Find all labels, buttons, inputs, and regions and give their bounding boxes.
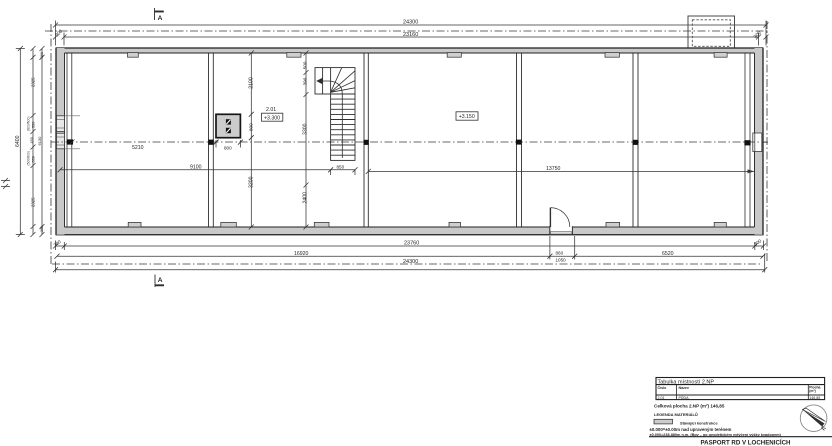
- svg-text:450: 450: [30, 137, 34, 143]
- svg-text:LEGENDA MATERIÁLŮ: LEGENDA MATERIÁLŮ: [654, 412, 698, 417]
- svg-text:A: A: [158, 15, 163, 22]
- svg-text:(600/600): (600/600): [26, 116, 30, 131]
- svg-text:24300: 24300: [403, 259, 418, 265]
- svg-text:550: 550: [32, 122, 36, 128]
- svg-text:5210: 5210: [132, 145, 144, 151]
- svg-text:23760: 23760: [404, 241, 419, 247]
- svg-text:1050: 1050: [556, 258, 567, 263]
- svg-text:2400: 2400: [303, 192, 309, 204]
- svg-text:3200: 3200: [248, 176, 254, 188]
- svg-text:13750: 13750: [546, 166, 561, 172]
- svg-text:2.01: 2.01: [658, 396, 665, 400]
- svg-text:800: 800: [224, 145, 232, 150]
- svg-text:+3.300: +3.300: [264, 115, 280, 121]
- svg-text:860: 860: [556, 251, 564, 256]
- svg-text:390: 390: [303, 77, 308, 85]
- svg-text:Název: Název: [679, 386, 689, 390]
- svg-text:3300: 3300: [303, 123, 309, 135]
- svg-text:2325: 2325: [31, 77, 36, 87]
- svg-text:PŮDA: PŮDA: [679, 395, 690, 400]
- svg-text:PASPORT RD V LOCHENICÍCH: PASPORT RD V LOCHENICÍCH: [701, 438, 792, 446]
- svg-text:(500/600): (500/600): [26, 151, 30, 166]
- svg-text:±0.000=±0.00m nad upraveným te: ±0.000=±0.00m nad upraveným terénem: [650, 427, 732, 432]
- svg-text:Tabulka místností 2.NP: Tabulka místností 2.NP: [658, 380, 715, 386]
- svg-text:(m²): (m²): [809, 389, 815, 393]
- svg-text:550: 550: [32, 156, 36, 162]
- svg-text:24300: 24300: [403, 19, 418, 25]
- svg-text:6130: 6130: [37, 136, 42, 146]
- svg-text:Stávající konstrukce: Stávající konstrukce: [680, 420, 718, 425]
- svg-text:23160: 23160: [403, 32, 418, 38]
- svg-text:A: A: [158, 277, 163, 284]
- svg-text:850: 850: [337, 164, 345, 169]
- svg-text:146,85: 146,85: [809, 396, 820, 400]
- svg-text:Celková plocha 2.NP (m²) 146,: Celková plocha 2.NP (m²) 146,85: [654, 403, 725, 408]
- svg-text:16920: 16920: [294, 251, 309, 257]
- svg-text:300: 300: [40, 52, 44, 58]
- svg-text:6520: 6520: [662, 251, 674, 257]
- svg-text:500: 500: [303, 61, 308, 69]
- svg-text:9100: 9100: [190, 164, 202, 170]
- svg-text:6400: 6400: [15, 135, 21, 147]
- svg-text:800: 800: [248, 123, 253, 131]
- svg-text:2100: 2100: [248, 77, 254, 89]
- svg-text:2.01: 2.01: [266, 107, 276, 113]
- svg-text:+3.150: +3.150: [459, 114, 475, 120]
- svg-text:Číslo: Číslo: [658, 385, 668, 390]
- svg-text:2325: 2325: [31, 197, 36, 207]
- svg-text:300: 300: [40, 226, 44, 232]
